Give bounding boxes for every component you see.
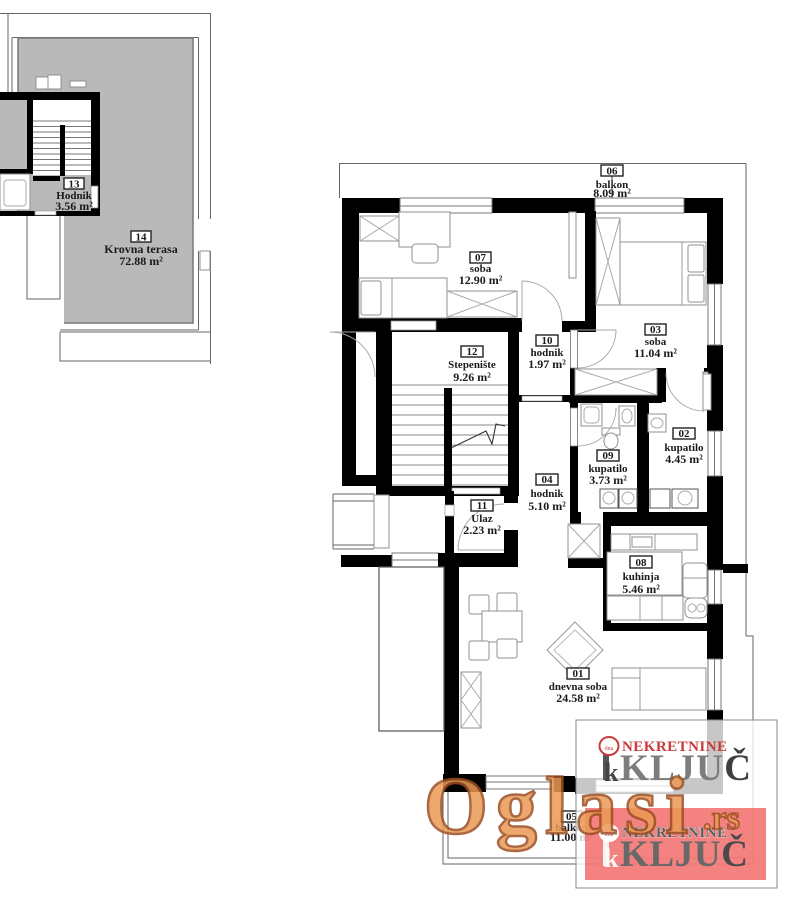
svg-text:dna: dna xyxy=(605,746,614,752)
svg-text:9.26 m²: 9.26 m² xyxy=(453,370,491,384)
svg-text:24.58 m²: 24.58 m² xyxy=(556,691,600,705)
svg-text:10: 10 xyxy=(542,335,554,347)
svg-text:12: 12 xyxy=(467,346,479,358)
svg-text:Oglasi: Oglasi xyxy=(424,760,688,851)
svg-text:4.45 m²: 4.45 m² xyxy=(665,452,703,466)
svg-text:1.97 m²: 1.97 m² xyxy=(528,357,566,371)
svg-text:72.88 m²: 72.88 m² xyxy=(119,254,163,268)
svg-text:04: 04 xyxy=(542,474,554,486)
svg-text:08: 08 xyxy=(636,557,648,569)
svg-text:2.23 m²: 2.23 m² xyxy=(463,523,501,537)
svg-text:01: 01 xyxy=(573,668,584,680)
svg-text:3.73 m²: 3.73 m² xyxy=(589,473,627,487)
svg-text:11: 11 xyxy=(477,500,487,512)
svg-text:03: 03 xyxy=(650,324,662,336)
svg-text:09: 09 xyxy=(603,450,615,462)
svg-text:3.56 m²: 3.56 m² xyxy=(55,199,93,213)
svg-text:12.90 m²: 12.90 m² xyxy=(459,273,503,287)
svg-text:02: 02 xyxy=(679,428,691,440)
svg-text:5.10 m²: 5.10 m² xyxy=(528,499,566,513)
svg-text:06: 06 xyxy=(607,166,619,178)
svg-text:11.04 m²: 11.04 m² xyxy=(634,346,677,360)
svg-text:13: 13 xyxy=(69,179,81,191)
svg-text:5.46 m²: 5.46 m² xyxy=(622,582,660,596)
svg-text:.rs: .rs xyxy=(703,800,740,837)
